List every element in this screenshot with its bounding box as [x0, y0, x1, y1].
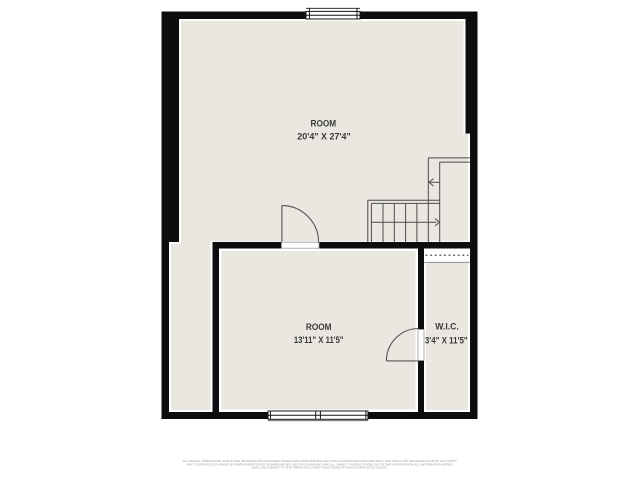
svg-text:20'4" X 27'4": 20'4" X 27'4" — [297, 132, 351, 143]
svg-text:ROOM: ROOM — [306, 322, 332, 332]
svg-text:SHALL BE SUBJECT TO THE TERMS: SHALL BE SUBJECT TO THE TERMS AND CONDIT… — [252, 466, 389, 470]
svg-text:W.I.C.: W.I.C. — [435, 321, 459, 331]
svg-text:13'11" X 11'5": 13'11" X 11'5" — [294, 335, 344, 346]
svg-text:ROOM: ROOM — [311, 119, 337, 129]
svg-text:3'4" X 11'5": 3'4" X 11'5" — [425, 335, 468, 346]
